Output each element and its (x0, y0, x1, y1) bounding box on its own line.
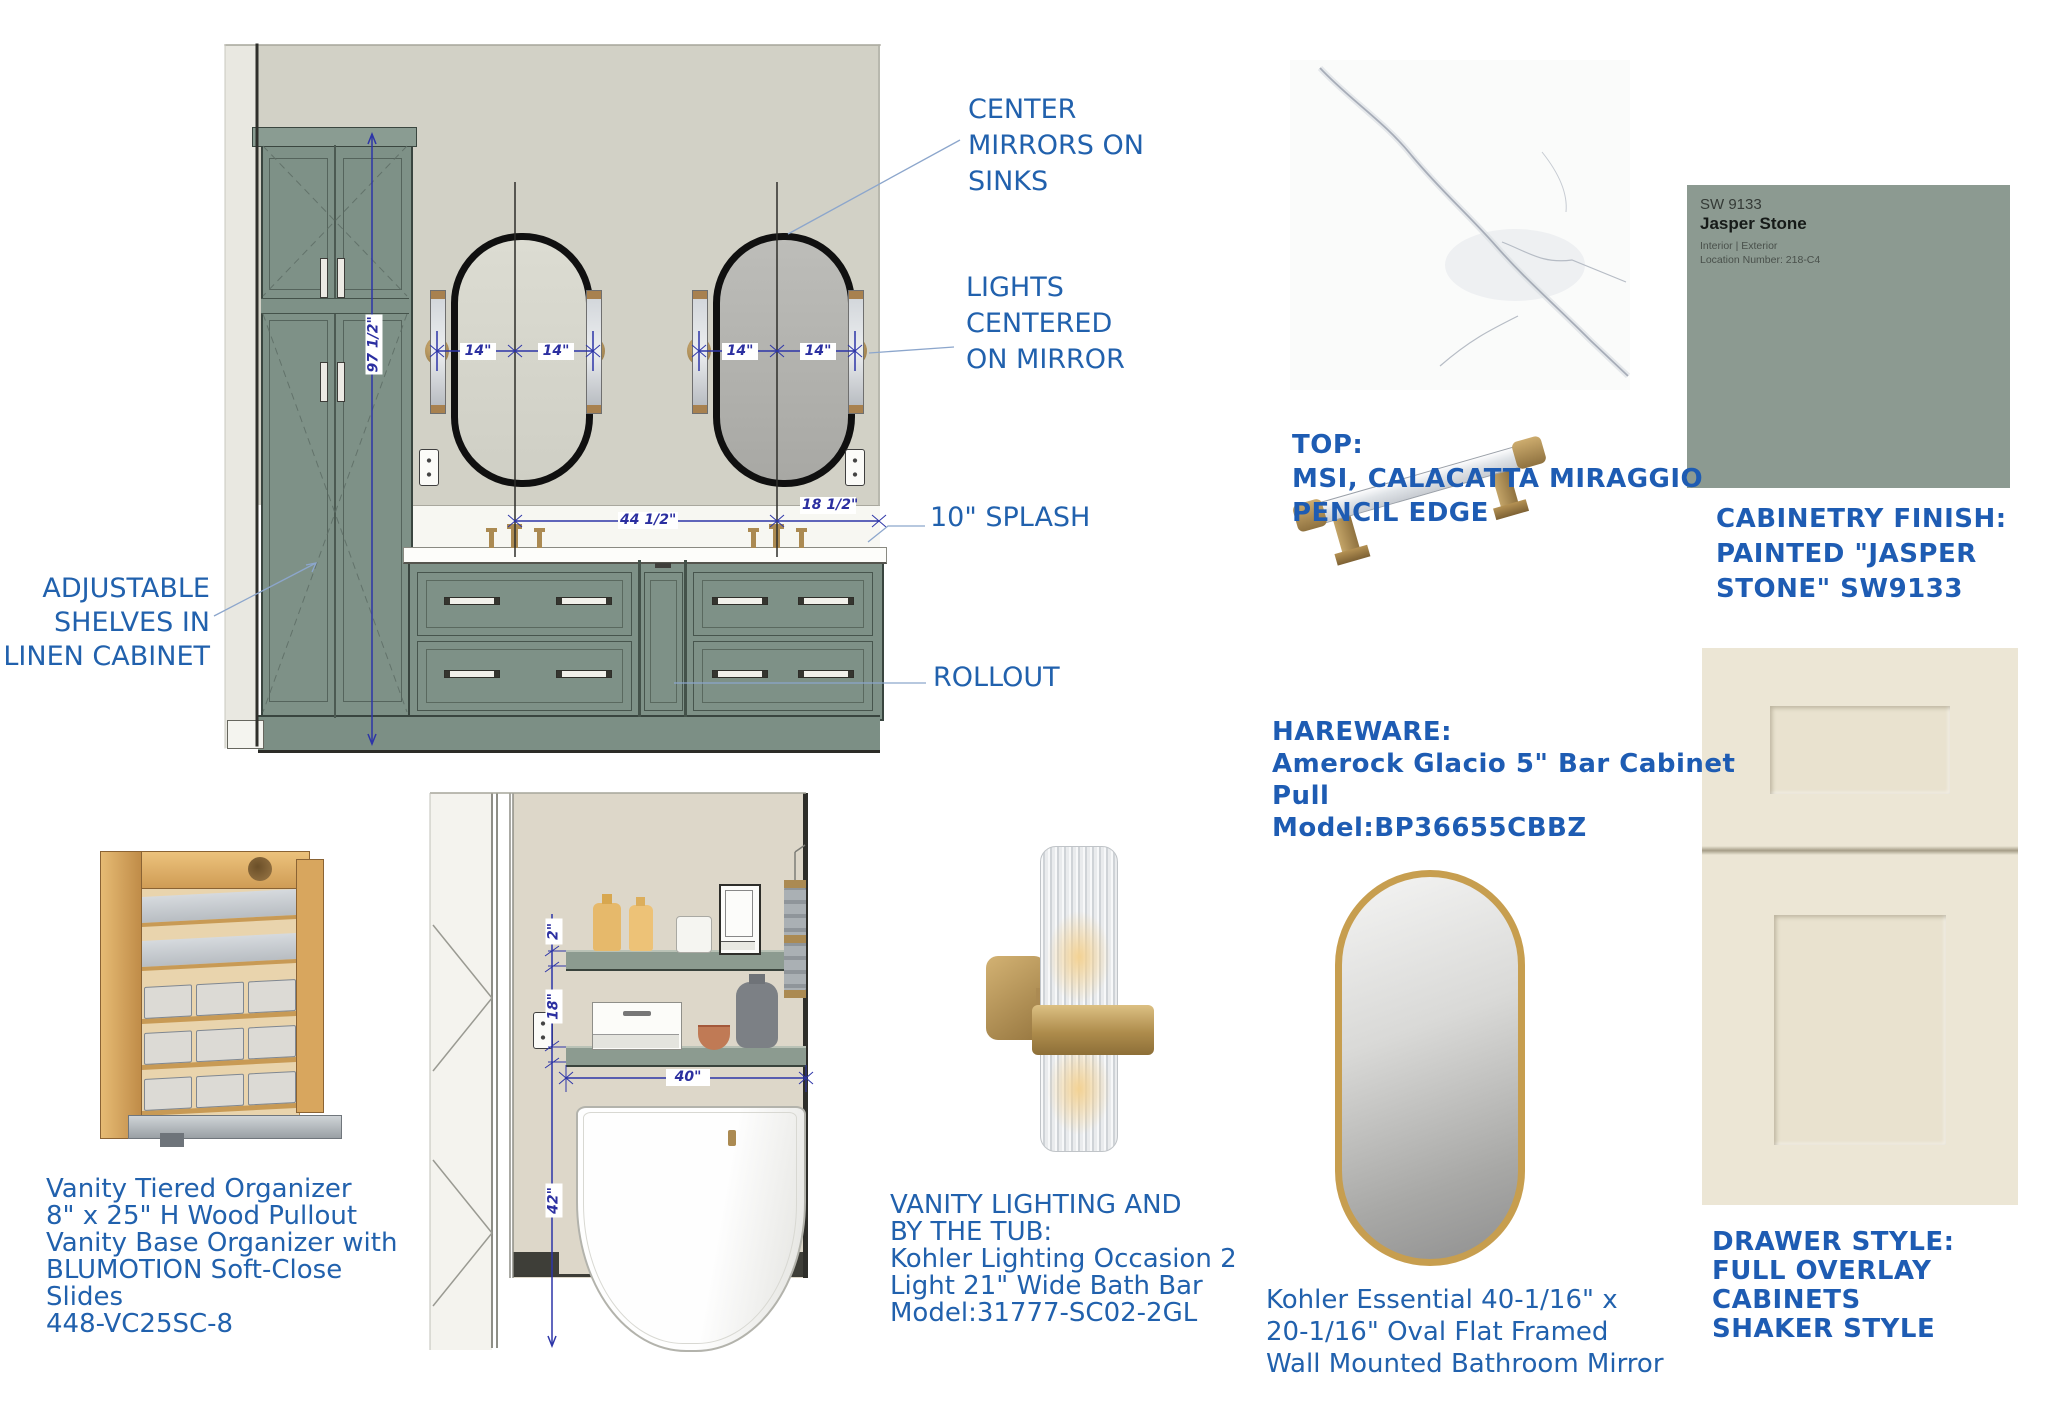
organizer-photo (100, 845, 345, 1160)
callout-line: LIGHTS (966, 270, 1125, 306)
linen-door-panel (343, 158, 402, 290)
rollout-latch (655, 563, 671, 568)
note-line: Slides (46, 1284, 397, 1311)
organizer-slide-detail (160, 1133, 184, 1147)
note-line: Vanity Tiered Organizer (46, 1176, 397, 1203)
organizer-hole (248, 857, 272, 881)
note-organizer: Vanity Tiered Organizer 8" x 25" H Wood … (46, 1176, 397, 1338)
frame-base (721, 941, 755, 950)
sconce-bar (848, 290, 864, 414)
loofah-band (784, 935, 806, 943)
callout-line: ON MIRROR (966, 342, 1125, 378)
dim-shelf-width: 40" (666, 1069, 710, 1086)
marble-swatch (1290, 60, 1630, 390)
tissue-band (593, 1034, 679, 1048)
note-hardware: HAREWARE: Amerock Glacio 5" Bar Cabinet … (1272, 716, 1735, 844)
toe-kick (258, 715, 880, 753)
drawer-pull (712, 597, 768, 605)
note-line: 20-1/16" Oval Flat Framed (1266, 1316, 1664, 1348)
note-line: Kohler Lighting Occasion 2 (890, 1246, 1237, 1273)
drawer-pull (798, 597, 854, 605)
faucet-spout-top (769, 524, 784, 529)
amber-bottle (593, 903, 621, 951)
sconce-glow (1047, 911, 1111, 1003)
callout-rollout: ROLLOUT (933, 660, 1060, 696)
callout-splash: 10" SPLASH (930, 500, 1090, 536)
rollout-door-bead (650, 580, 677, 703)
shaker-sample (1702, 648, 2018, 1205)
organizer-left-panel (100, 851, 142, 1139)
faucet-spout (511, 526, 518, 548)
note-line: PAINTED "JASPER (1716, 537, 2007, 572)
linen-door-handle (337, 258, 345, 298)
note-line: 8" x 25" H Wood Pullout (46, 1203, 397, 1230)
note-countertop: TOP: MSI, CALACATTA MIRAGGIO PENCIL EDGE (1292, 428, 1703, 530)
note-line: DRAWER STYLE: (1712, 1228, 1955, 1257)
tissue-slot (623, 1011, 651, 1016)
tub-base-trim (513, 1252, 559, 1275)
sconce-glass-cylinder (1040, 846, 1118, 1152)
linen-door-handle (337, 362, 345, 402)
floating-shelf-upper (566, 950, 806, 971)
dim-sink-to-wall: 18 1/2" (800, 497, 856, 514)
note-vanity-lighting: VANITY LIGHTING AND BY THE TUB: Kohler L… (890, 1192, 1237, 1327)
callout-center-mirrors: CENTER MIRRORS ON SINKS (968, 92, 1144, 200)
clear-bin (144, 1030, 192, 1065)
note-cabinetry-finish: CABINETRY FINISH: PAINTED "JASPER STONE"… (1716, 502, 2007, 607)
outlet (845, 449, 865, 486)
note-line: MSI, CALACATTA MIRAGGIO (1292, 462, 1703, 496)
tissue-box (592, 1002, 682, 1050)
tub-drain-lever (728, 1130, 736, 1146)
organizer-bin-row (142, 977, 296, 1024)
design-board: SW 9133 Jasper Stone Interior | Exterior… (0, 0, 2048, 1409)
clear-bin (196, 982, 244, 1017)
paint-chip-code: SW 9133 (1700, 196, 1762, 213)
organizer-right-panel (296, 859, 324, 1113)
faceted-jar (676, 916, 712, 953)
note-line: BLUMOTION Soft-Close (46, 1257, 397, 1284)
vanity-divider (638, 560, 641, 717)
note-line: HAREWARE: (1272, 716, 1735, 748)
note-line: CABINETRY FINISH: (1716, 502, 2007, 537)
clear-bin (196, 1028, 244, 1063)
note-line: SHAKER STYLE (1712, 1315, 1955, 1344)
outlet (419, 449, 439, 486)
note-line: Kohler Essential 40-1/16" x (1266, 1284, 1664, 1316)
freestanding-tub (576, 1106, 806, 1352)
tub-rim (583, 1112, 797, 1344)
sconce-glow (1047, 1043, 1111, 1135)
paint-chip-location: Location Number: 218-C4 (1700, 254, 1820, 266)
drawer-pull (444, 670, 500, 678)
shaker-drawer-panel (1770, 706, 1950, 794)
organizer-bin-row (142, 1069, 296, 1116)
hanging-loofah (784, 880, 806, 998)
gold-mirror-photo (1255, 862, 1567, 1262)
note-line: VANITY LIGHTING AND (890, 1192, 1237, 1219)
drawer-pull (712, 670, 768, 678)
dim-cabinet-height: 97 1/2" (366, 315, 383, 375)
gold-oval-mirror (1335, 870, 1525, 1266)
note-line: STONE" SW9133 (1716, 572, 2007, 607)
linen-cabinet-mid-rail (261, 298, 409, 314)
faucet-handle-top (486, 528, 497, 532)
clear-bin (144, 984, 192, 1019)
note-line: Wall Mounted Bathroom Mirror (1266, 1348, 1664, 1380)
callout-line: SHELVES IN (0, 606, 210, 640)
drawer-pull (444, 597, 500, 605)
dim-light-offset: 14" (538, 343, 574, 360)
callout-line: MIRRORS ON (968, 128, 1144, 164)
callout-line: CENTER (968, 92, 1144, 128)
faucet-handle (751, 530, 756, 548)
note-line: Light 21" Wide Bath Bar (890, 1273, 1237, 1300)
dim-shelf-thickness: 2" (546, 919, 563, 945)
note-line: CABINETS (1712, 1286, 1955, 1315)
dim-sink-spacing: 44 1/2" (618, 512, 678, 529)
note-line: PENCIL EDGE (1292, 496, 1703, 530)
note-line: Model:31777-SC02-2GL (890, 1300, 1237, 1327)
clear-bin (248, 1071, 296, 1106)
faucet-handle-top (796, 528, 807, 532)
linen-cabinet-crown (252, 127, 417, 147)
paint-chip-type: Interior | Exterior (1700, 240, 1777, 252)
callout-adjustable-shelves: ADJUSTABLE SHELVES IN LINEN CABINET (0, 572, 210, 674)
drawer-pull (556, 670, 612, 678)
sconce-photo (945, 830, 1160, 1162)
sconce-bar (586, 290, 602, 414)
dim-light-offset: 14" (800, 343, 836, 360)
organizer-bin-row (142, 1023, 296, 1070)
note-line: Vanity Base Organizer with (46, 1230, 397, 1257)
oval-mirror-left (451, 233, 593, 487)
sconce-bar (692, 290, 708, 414)
dim-shelf-floor: 42" (546, 1184, 563, 1218)
sconce-center-band (1032, 1005, 1154, 1055)
shaker-gap-line (1702, 846, 2018, 855)
note-line: Model:BP36655CBBZ (1272, 812, 1735, 844)
callout-line: SINKS (968, 164, 1144, 200)
bottle-neck (636, 897, 645, 906)
oval-mirror-right (713, 233, 855, 487)
callout-line: ADJUSTABLE (0, 572, 210, 606)
shelf-frame (719, 884, 761, 955)
faucet-handle (489, 530, 494, 548)
clear-bin (144, 1076, 192, 1111)
pull-foot (1334, 545, 1370, 566)
dim-shelf-gap: 18" (546, 990, 563, 1024)
tub-elevation-door (430, 793, 492, 1350)
loofah-band (784, 880, 806, 888)
callout-line: LINEN CABINET (0, 640, 210, 674)
clear-bin (248, 979, 296, 1014)
note-line: BY THE TUB: (890, 1219, 1237, 1246)
gray-vase (736, 982, 778, 1048)
note-drawer-style: DRAWER STYLE: FULL OVERLAY CABINETS SHAK… (1712, 1228, 1955, 1344)
callout-lights-centered: LIGHTS CENTERED ON MIRROR (966, 270, 1125, 378)
countertop (403, 547, 887, 564)
loofah-band (784, 990, 806, 998)
paint-chip-name: Jasper Stone (1700, 214, 1807, 234)
dim-light-offset: 14" (722, 343, 758, 360)
frame-inner (725, 890, 753, 937)
bottle-neck (602, 894, 612, 904)
linen-door-panel (343, 320, 402, 702)
drawer-pull (556, 597, 612, 605)
marble-veins (1290, 60, 1630, 390)
note-line: 448-VC25SC-8 (46, 1311, 397, 1338)
linen-cabinet-stile (334, 145, 336, 718)
vanity-divider (684, 560, 687, 717)
faucet-handle (537, 530, 542, 548)
note-line: Amerock Glacio 5" Bar Cabinet (1272, 748, 1735, 780)
drawer-pull (798, 670, 854, 678)
wall-baseboard (227, 720, 264, 749)
faucet-handle-top (748, 528, 759, 532)
sconce-bar (430, 290, 446, 414)
callout-line: CENTERED (966, 306, 1125, 342)
faucet-spout-top (507, 524, 522, 529)
clear-bin (196, 1074, 244, 1109)
faucet-handle (799, 530, 804, 548)
note-line: TOP: (1292, 428, 1703, 462)
note-line: FULL OVERLAY (1712, 1257, 1955, 1286)
dim-light-offset: 14" (460, 343, 496, 360)
note-wall-mirror: Kohler Essential 40-1/16" x 20-1/16" Ova… (1266, 1284, 1664, 1380)
linen-door-handle (320, 362, 328, 402)
linen-door-handle (320, 258, 328, 298)
faucet-spout (773, 526, 780, 548)
clear-bin (248, 1025, 296, 1060)
shaker-door-panel (1774, 915, 1946, 1145)
vase-neck (749, 974, 765, 984)
vanity-elevation-wall-return (225, 45, 257, 748)
faucet-handle-top (534, 528, 545, 532)
note-line: Pull (1272, 780, 1735, 812)
amber-bottle (629, 905, 653, 951)
